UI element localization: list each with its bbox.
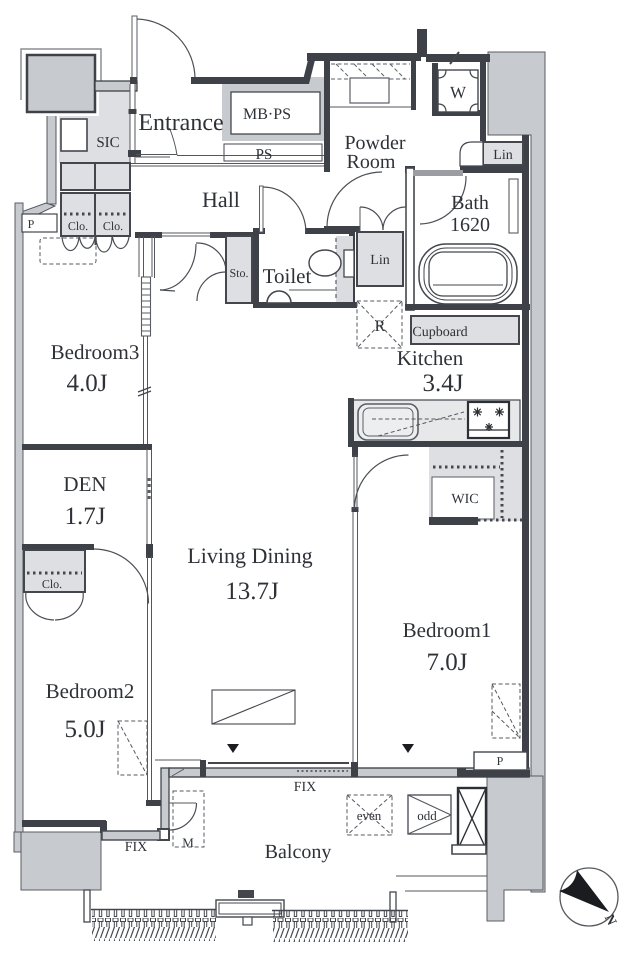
svg-text:R: R — [375, 318, 386, 335]
svg-text:Bedroom3: Bedroom3 — [51, 340, 140, 364]
svg-text:Clo.: Clo. — [42, 577, 62, 591]
svg-text:1620: 1620 — [450, 214, 490, 236]
svg-text:FIX: FIX — [294, 780, 317, 795]
svg-text:Bedroom1: Bedroom1 — [403, 618, 492, 642]
svg-text:DEN: DEN — [63, 472, 106, 496]
svg-text:SIC: SIC — [96, 135, 119, 151]
svg-text:Clo.: Clo. — [68, 219, 88, 233]
svg-text:Cupboard: Cupboard — [412, 325, 467, 340]
svg-text:Bath: Bath — [451, 192, 489, 214]
svg-text:Clo.: Clo. — [103, 219, 123, 233]
svg-text:1.7J: 1.7J — [65, 503, 106, 530]
svg-text:Sto.: Sto. — [229, 266, 248, 280]
svg-text:P: P — [497, 754, 504, 768]
svg-text:Living Dining: Living Dining — [187, 543, 312, 568]
svg-text:5.0J: 5.0J — [65, 716, 106, 743]
svg-text:7.0J: 7.0J — [427, 649, 468, 676]
svg-text:Hall: Hall — [202, 187, 240, 212]
svg-text:Kitchen: Kitchen — [397, 346, 464, 370]
svg-text:M: M — [182, 835, 194, 850]
svg-text:3.4J: 3.4J — [423, 370, 464, 397]
svg-text:Lin: Lin — [370, 253, 389, 268]
svg-text:Room: Room — [347, 151, 396, 173]
svg-text:W: W — [450, 83, 467, 102]
svg-text:odd: odd — [417, 808, 437, 823]
svg-text:13.7J: 13.7J — [225, 578, 279, 605]
svg-text:Bedroom2: Bedroom2 — [46, 679, 135, 703]
svg-text:Entrance: Entrance — [138, 110, 223, 136]
svg-text:even: even — [357, 808, 382, 823]
svg-text:P: P — [28, 217, 35, 231]
svg-text:Balcony: Balcony — [265, 841, 332, 863]
svg-text:PS: PS — [256, 147, 273, 163]
svg-text:Lin: Lin — [493, 148, 512, 163]
svg-text:4.0J: 4.0J — [67, 370, 108, 397]
svg-text:Toilet: Toilet — [263, 264, 312, 288]
svg-text:MB·PS: MB·PS — [243, 106, 291, 123]
svg-text:WIC: WIC — [451, 492, 478, 507]
svg-text:FIX: FIX — [125, 840, 148, 855]
